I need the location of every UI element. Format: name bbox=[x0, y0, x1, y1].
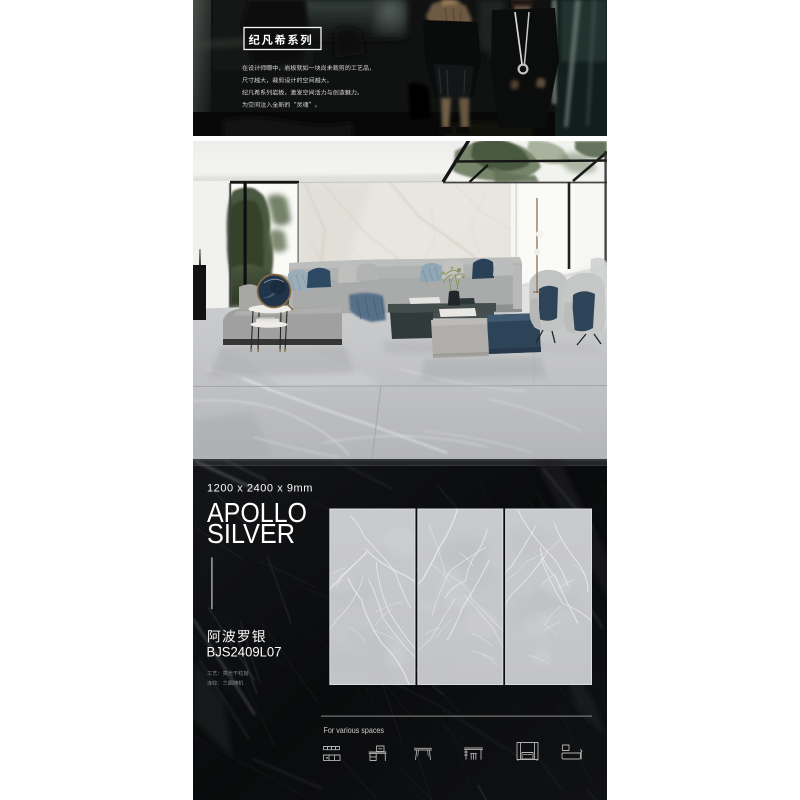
svg-text:1200 x 2400 x 9mm: 1200 x 2400 x 9mm bbox=[207, 483, 313, 495]
svg-text:SILVER: SILVER bbox=[207, 518, 295, 549]
svg-text:For various spaces: For various spaces bbox=[324, 726, 385, 735]
svg-text:BJS2409L07: BJS2409L07 bbox=[207, 645, 282, 660]
